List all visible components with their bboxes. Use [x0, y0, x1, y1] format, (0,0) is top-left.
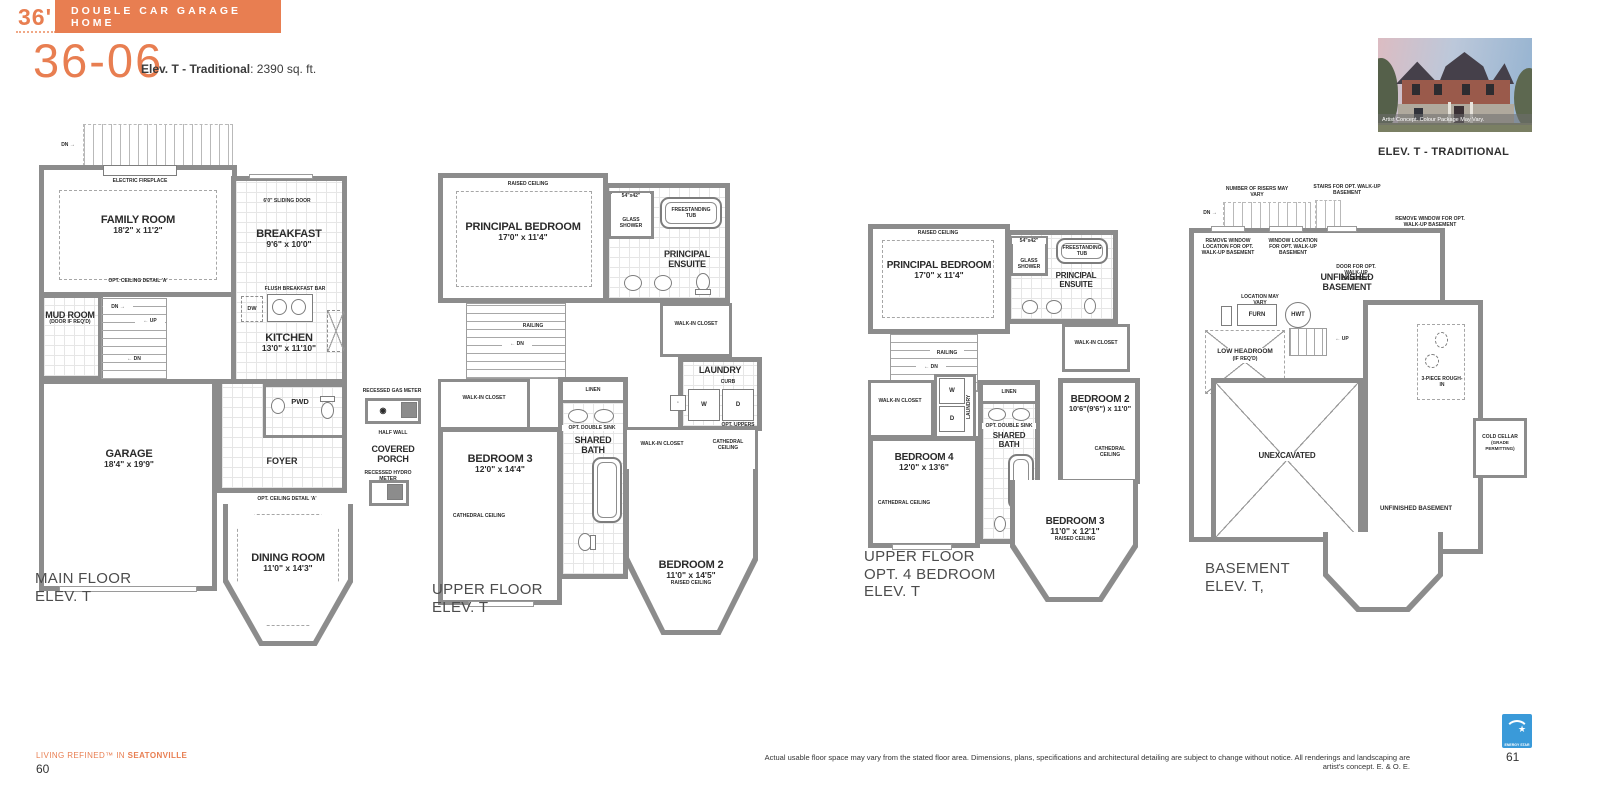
opt4-railing-label: RAILING: [930, 350, 964, 356]
opt4-principal-label: PRINCIPAL BEDROOM 17'0" x 11'4": [880, 260, 998, 281]
pwd-label: PWD: [285, 398, 315, 407]
opt4-raised-ceiling: RAISED CEILING: [906, 230, 970, 236]
energy-star-logo: ★ ENERGY STAR: [1502, 714, 1532, 748]
model-number: 36-06: [33, 33, 163, 88]
opt4-opt-double-sink: OPT. DOUBLE SINK: [982, 423, 1036, 429]
mud-room: [39, 293, 103, 381]
bedroom3-label: BEDROOM 3 12'0" x 14'4": [446, 453, 554, 475]
mud-room-label: MUD ROOM (DOOR IF REQ'D): [41, 310, 99, 326]
mech-box: [1221, 306, 1232, 326]
opt4-shared-bath-label: SHARED BATH: [984, 432, 1034, 450]
banner-text: DOUBLE CAR GARAGE HOME: [55, 5, 281, 29]
raised-ceiling-label: RAISED CEILING: [488, 181, 568, 187]
hot-water-tank: HWT: [1285, 302, 1311, 328]
tub-inner: [597, 462, 617, 518]
gas-meter-label: RECESSED GAS METER: [359, 388, 425, 394]
opt4-laundry-label: LAUNDRY: [966, 382, 972, 432]
model-subtitle: Elev. T - Traditional: 2390 sq. ft.: [141, 62, 316, 76]
sqft: : 2390 sq. ft.: [250, 62, 316, 76]
basement-up-label: ← UP: [1329, 336, 1355, 342]
furnace: FURN: [1237, 304, 1277, 326]
bedroom3-wic: [438, 379, 530, 431]
opt4-bath-sink: [1012, 408, 1030, 421]
house-window: [1412, 84, 1420, 95]
shared-bath-label: SHARED BATH: [564, 435, 622, 455]
plan-opt4-bedroom: RAISED CEILING PRINCIPAL BEDROOM 17'0" x…: [862, 212, 1154, 617]
basement-window: [1269, 226, 1303, 232]
house-window: [1434, 84, 1442, 95]
basement-up-stairs: [1289, 328, 1327, 356]
basement-dn-label: DN →: [1197, 210, 1223, 216]
opt4-bedroom4-cathedral: CATHEDRAL CEILING: [874, 500, 934, 506]
window-loc-label: WINDOW LOCATION FOR OPT. WALK-UP BASEMEN…: [1265, 238, 1321, 256]
laundry-sink-icon: ◦: [670, 395, 686, 411]
shower-dims: 54"x42": [612, 193, 650, 199]
shower-label: GLASS SHOWER: [614, 217, 648, 229]
opt4-washer: W: [939, 378, 965, 404]
opt4-tub-label: FREESTANDING TUB: [1062, 245, 1102, 257]
opt-double-sink-label: OPT. DOUBLE SINK: [562, 425, 622, 431]
frontage-label: 36': [18, 4, 52, 31]
washer: W: [688, 389, 720, 421]
house-window: [1462, 84, 1470, 95]
flush-bar-label: FLUSH BREAKFAST BAR: [249, 286, 341, 292]
opt4-ensuite-label: PRINCIPAL ENSUITE: [1040, 272, 1112, 290]
pwd-sink: [271, 398, 285, 414]
remove-window-loc-label: REMOVE WINDOW LOCATION FOR OPT. WALK-UP …: [1199, 238, 1257, 256]
pwd-toilet-tank: [320, 396, 335, 402]
family-room-label: FAMILY ROOM 18'2" x 11'2": [68, 214, 208, 236]
page-number-left: 60: [36, 762, 49, 776]
opt4-ensuite-toilet: [1084, 298, 1096, 314]
bedroom2-label: BEDROOM 2 11'0" x 14'5" RAISED CEILING: [638, 559, 744, 586]
cold-cellar-label: COLD CELLAR (GRADE PERMITTING): [1477, 434, 1523, 452]
plan-main-floor: DN → ELECTRIC FIREPLACE FAMILY ROOM 18'2…: [35, 110, 427, 655]
rough-in-toilet: [1435, 332, 1448, 348]
opt4-bedroom3-label: BEDROOM 3 11'0" x 12'1" RAISED CEILING: [1028, 516, 1122, 542]
opt4-bedroom2-label: BEDROOM 2 10'6"(9'6") x 11'0": [1056, 394, 1144, 414]
opt4-caption: UPPER FLOOR OPT. 4 BEDROOM ELEV. T: [864, 548, 996, 601]
ensuite-sink: [624, 275, 642, 291]
opt4-dn-label: ← DN: [916, 364, 946, 370]
opt4-ensuite-sink: [1046, 300, 1062, 314]
bedroom3-wic-label: WALK-IN CLOSET: [454, 395, 514, 401]
main-floor-caption: MAIN FLOOR ELEV. T: [35, 570, 131, 605]
upper-dn-label: ← DN: [502, 341, 532, 347]
three-piece-label: 3-PIECE ROUGH-IN: [1421, 376, 1463, 388]
freestanding-tub-label: FREESTANDING TUB: [668, 207, 714, 219]
ensuite-sink: [654, 275, 672, 291]
photo-caption: Artist Concept. Colour Package May Vary.: [1378, 117, 1484, 123]
steps-dn-arrow: DN →: [53, 142, 83, 148]
kitchen-sink-bowl: [291, 299, 306, 315]
curb-label: CURB: [708, 379, 748, 385]
opt4-shower-label: GLASS SHOWER: [1014, 258, 1044, 270]
opt4-wic-left: [868, 380, 934, 438]
remove-window-label: REMOVE WINDOW FOR OPT. WALK-UP BASEMENT: [1395, 216, 1465, 228]
bath-sink: [594, 409, 614, 423]
gas-meter-pad: [401, 402, 417, 418]
kitchen-sink-bowl: [272, 299, 287, 315]
plan-upper-floor: RAISED CEILING PRINCIPAL BEDROOM 17'0" x…: [432, 165, 766, 645]
elev-name: Elev. T - Traditional: [141, 62, 250, 76]
gas-meter-eye-icon: ◉: [375, 406, 391, 416]
footer-tagline: LIVING REFINED™ IN SEATONVILLE: [36, 751, 187, 760]
fireplace-label: ELECTRIC FIREPLACE: [103, 178, 177, 184]
low-headroom-label: LOW HEADROOM (IF REQ'D): [1211, 348, 1279, 363]
bedroom2-floor: [629, 469, 753, 630]
upper-floor-caption: UPPER FLOOR ELEV. T: [432, 581, 543, 616]
hydro-meter-pad: [387, 484, 403, 500]
family-opt-ceiling-label: OPT. CEILING DETAIL 'A': [83, 278, 193, 284]
opt4-ensuite-sink: [1022, 300, 1038, 314]
house-window: [1486, 84, 1494, 95]
stairs-opt-label: STAIRS FOR OPT. WALK-UP BASEMENT: [1311, 184, 1383, 196]
bedroom-2: [624, 469, 758, 635]
laundry-label: LAUNDRY: [688, 365, 752, 375]
photo-caption-bar: Artist Concept. Colour Package May Vary.: [1378, 114, 1532, 125]
cooktop-icon: [327, 310, 345, 352]
principal-wic: [660, 303, 732, 357]
opt4-wic-right-label: WALK-IN CLOSET: [1070, 340, 1122, 346]
bedroom3-cathedral-label: CATHEDRAL CEILING: [444, 513, 514, 519]
num-risers-label: NUMBER OF RISERS MAY VARY: [1221, 186, 1293, 198]
breakfast-label: BREAKFAST 9'6" x 10'0": [239, 228, 339, 250]
ensuite-label: PRINCIPAL ENSUITE: [648, 249, 726, 269]
stairs-dn-label: DN →: [103, 304, 133, 310]
garage: [39, 379, 217, 591]
ensuite-toilet-tank: [695, 289, 711, 295]
principal-bedroom-label: PRINCIPAL BEDROOM 17'0" x 11'4": [458, 221, 588, 243]
opt4-shower-dims: 54"x42": [1012, 238, 1046, 244]
basement-window: [1327, 226, 1357, 232]
opt4-wic-right: [1062, 324, 1130, 372]
sliding-door: [249, 174, 313, 179]
stairs-up-label: ← UP: [135, 318, 165, 324]
opt4-bedroom4-label: BEDROOM 4 12'0" x 13'6": [874, 452, 974, 473]
fireplace-icon: [103, 165, 177, 176]
linen-label: LINEN: [574, 387, 612, 393]
dryer: D: [722, 389, 754, 421]
pwd-toilet: [321, 402, 334, 419]
kitchen-label: KITCHEN 13'0" x 11'10": [239, 332, 339, 354]
principal-wic-label: WALK-IN CLOSET: [668, 321, 724, 327]
sliding-door-label: 6'0" SLIDING DOOR: [247, 198, 327, 204]
opt4-linen-label: LINEN: [992, 389, 1026, 395]
unexcavated-label: UNEXCAVATED: [1235, 452, 1339, 461]
dining-opt-ceiling-label: OPT. CEILING DETAIL 'A': [237, 496, 337, 502]
energy-star-text: ENERGY STAR: [1502, 743, 1532, 747]
bath-sink: [568, 409, 588, 423]
opt4-wic-left-label: WALK-IN CLOSET: [874, 398, 926, 404]
unfinished-basement-label: UNFINISHED BASEMENT: [1299, 272, 1395, 292]
opt4-bedroom2-cathedral: CATHEDRAL CEILING: [1086, 446, 1134, 458]
header-banner: DOUBLE CAR GARAGE HOME: [55, 0, 281, 33]
main-stairs: [101, 298, 167, 380]
page-number-right: 61: [1506, 750, 1519, 764]
railing-label: RAILING: [516, 323, 550, 329]
dining-room-label: DINING ROOM 11'0" x 14'3": [235, 552, 341, 574]
elevation-photo-label: ELEV. T - TRADITIONAL: [1378, 146, 1509, 158]
bedroom2-cathedral-label: CATHEDRAL CEILING: [704, 439, 752, 451]
basement-window: [1211, 226, 1245, 232]
covered-porch-label: COVERED PORCH: [361, 444, 425, 464]
footer-disclaimer: Actual usable floor space may vary from …: [760, 753, 1410, 771]
basement-caption: BASEMENT ELEV. T,: [1205, 560, 1290, 595]
opt4-bath-toilet: [994, 516, 1006, 532]
basement-bay: [1323, 532, 1443, 612]
bedroom2-wic-label: WALK-IN CLOSET: [632, 441, 692, 447]
half-wall-label: HALF WALL: [367, 430, 419, 436]
dishwasher: DW: [241, 296, 263, 322]
energy-star-star-icon: ★: [1518, 724, 1526, 735]
shared-bath-toilet-tank: [590, 535, 596, 550]
front-steps: [83, 124, 233, 166]
breakfast-kitchen: [231, 176, 347, 408]
elevation-photo: Artist Concept. Colour Package May Vary.: [1378, 38, 1532, 132]
rough-in-sink: [1425, 354, 1439, 368]
plan-basement: NUMBER OF RISERS MAY VARY STAIRS FOR OPT…: [1183, 172, 1531, 677]
stairs-dn2-label: ← DN: [119, 356, 149, 362]
foyer-label: FOYER: [247, 456, 317, 466]
opt4-bath-sink: [988, 408, 1006, 421]
shared-bath-tub: [592, 457, 622, 523]
unfinished2-label: UNFINISHED BASEMENT: [1379, 506, 1453, 513]
opt4-dryer: D: [939, 406, 965, 432]
garage-label: GARAGE 18'4" x 19'9": [59, 448, 199, 470]
basement-bay-floor: [1328, 532, 1438, 607]
